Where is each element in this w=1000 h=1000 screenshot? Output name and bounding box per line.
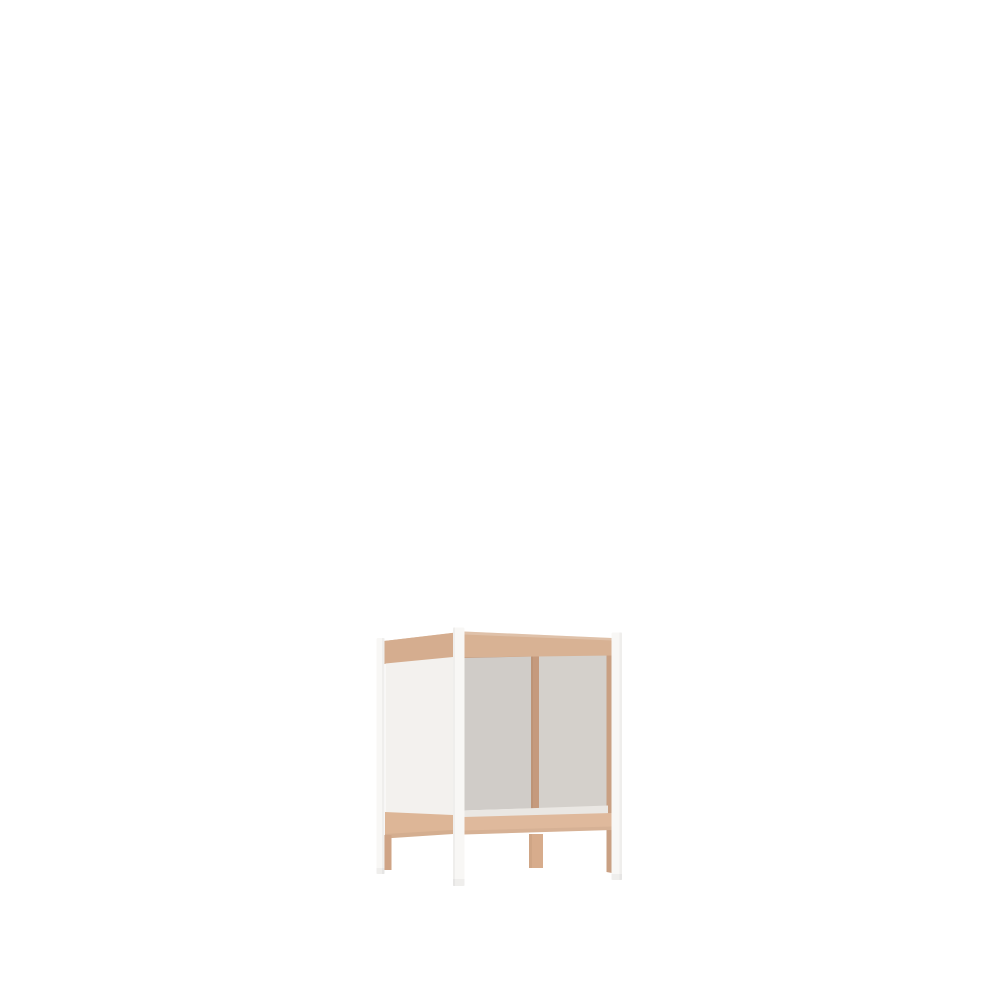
back-middle-wood-leg-shadow (529, 834, 532, 868)
back-left-post-foot (377, 868, 385, 874)
product-image (0, 0, 1000, 1000)
left-side (385, 657, 453, 839)
back-left-post-shade (382, 638, 385, 874)
front-left-post-seam (453, 628, 455, 887)
back-middle-divider-shadow (531, 656, 533, 808)
back-right-grey-panel (539, 654, 607, 809)
back-left-grey-panel (464, 657, 531, 811)
front-right-post-shade (620, 633, 623, 881)
back-right-wood-leg (607, 652, 613, 873)
front-left-post-foot (453, 879, 465, 886)
left-white-panel (386, 657, 454, 815)
render-canvas (0, 0, 1000, 1000)
back-left-wood-leg (385, 835, 392, 870)
front-right-post-foot (612, 874, 623, 880)
